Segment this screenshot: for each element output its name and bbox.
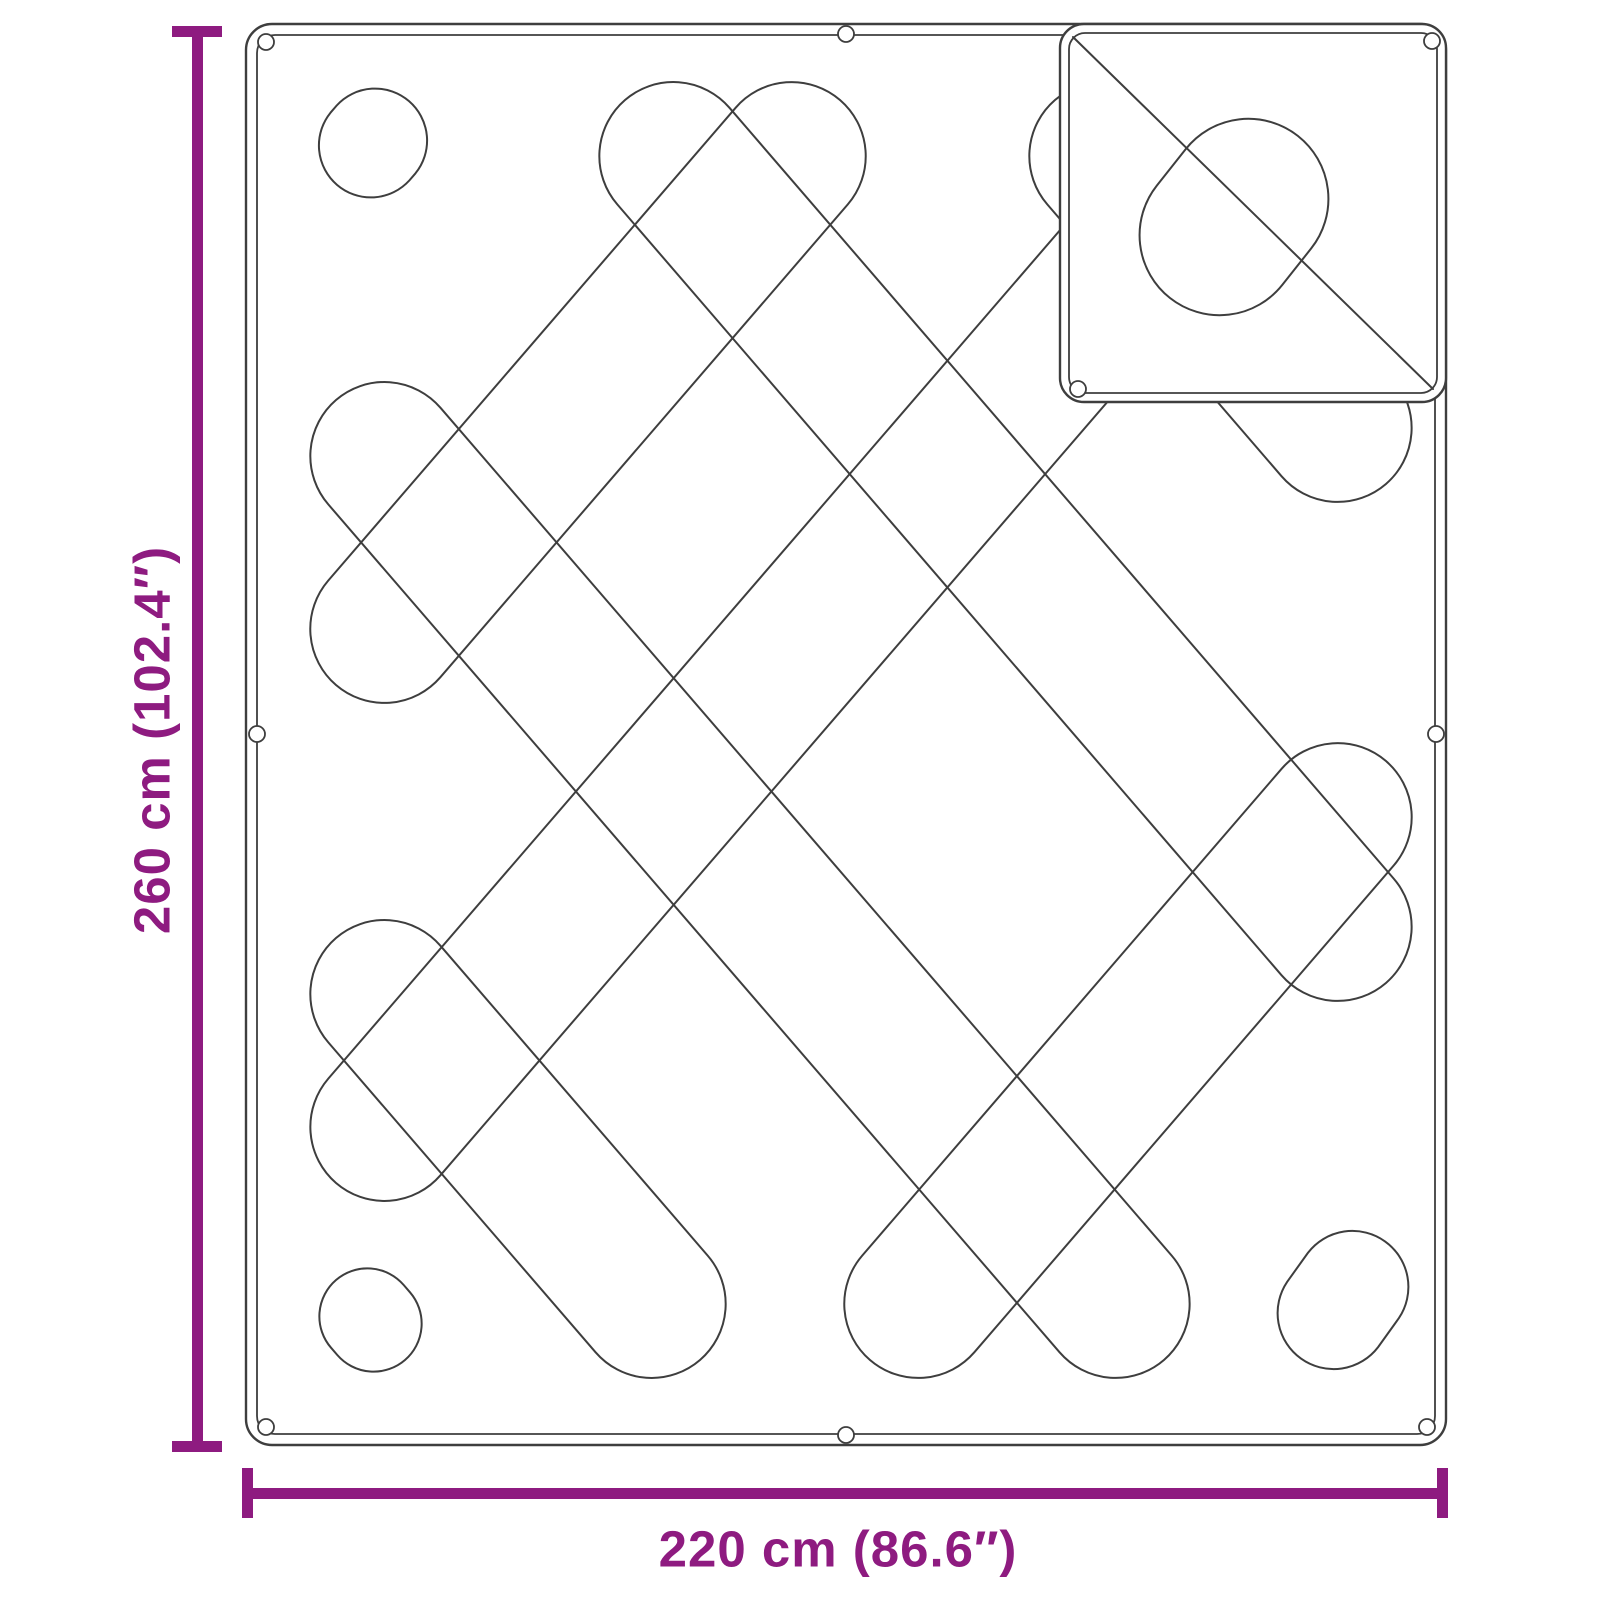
snap-circle-flap-bottom-left (1070, 381, 1086, 397)
width-cap-left (242, 1468, 253, 1518)
snap-circle-top-middle (838, 26, 854, 42)
blanket-dimension-diagram: 260 cm (102.4″) 220 cm (86.6″) (0, 0, 1600, 1600)
snap-circle-top-left (258, 34, 274, 50)
snap-circle-left-middle (249, 726, 265, 742)
width-cap-right (1437, 1468, 1448, 1518)
width-dimension-label: 220 cm (86.6″) (659, 1521, 1018, 1578)
height-dimension-label: 260 cm (102.4″) (124, 546, 181, 934)
snap-circle-bottom-right (1419, 1419, 1435, 1435)
snap-circle-flap-top-right (1424, 33, 1440, 49)
diagram-canvas: 260 cm (102.4″) 220 cm (86.6″) (0, 0, 1600, 1600)
width-dimension-line (242, 1468, 1448, 1518)
height-cap-bottom (172, 1441, 222, 1452)
corner-flap (1060, 24, 1446, 402)
height-cap-top (172, 26, 222, 37)
height-line (192, 28, 203, 1449)
snap-circle-right-middle (1428, 726, 1444, 742)
snap-circle-bottom-left (258, 1419, 274, 1435)
width-line (244, 1488, 1444, 1499)
snap-circle-bottom-middle (838, 1427, 854, 1443)
